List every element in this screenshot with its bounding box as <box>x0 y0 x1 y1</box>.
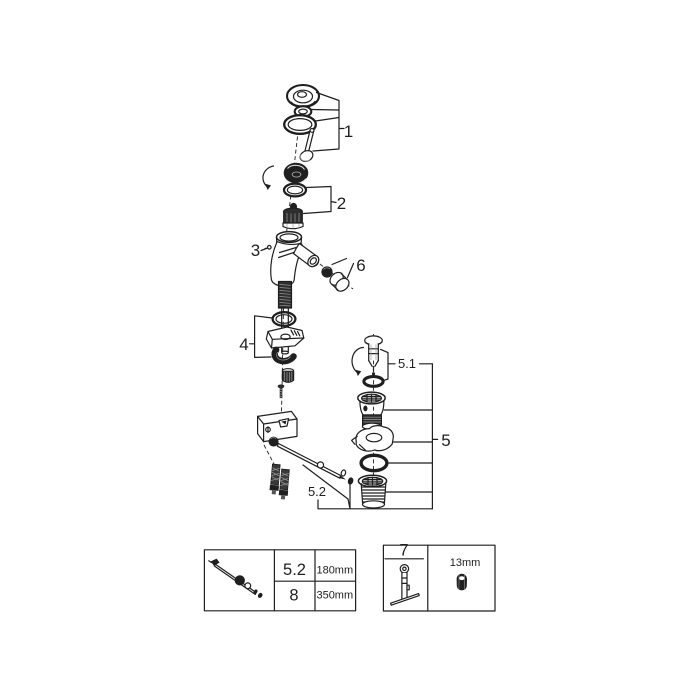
spec-row-0-length: 180mm <box>316 564 353 576</box>
callout-1-label: 1 <box>344 122 353 141</box>
callout-5-2-label: 5.2 <box>308 484 326 499</box>
callout-5-1-label: 5.1 <box>398 356 416 371</box>
callout-5-1-bracket: 5.1 <box>381 349 433 380</box>
part-group-4-mounting <box>266 312 304 398</box>
pop-up-rod-assembly <box>258 411 355 499</box>
diagram-svg: 1 2 3 <box>0 0 700 700</box>
tool-size-label: 13mm <box>450 557 481 569</box>
spec-row-0-ref: 5.2 <box>283 561 306 579</box>
cartridge-body <box>284 212 303 224</box>
tool-box: 7 13mm <box>383 542 495 612</box>
callout-5-label: 5 <box>441 431 450 450</box>
callout-6-label: 6 <box>356 256 365 275</box>
part-group-3-body: 3 <box>251 232 321 286</box>
spec-row-1-ref: 8 <box>289 587 298 605</box>
tool-ref-label: 7 <box>399 542 408 560</box>
callout-3-label: 3 <box>251 241 260 260</box>
nut-icon <box>457 574 467 591</box>
part-group-1-handle-cap <box>284 85 319 163</box>
rotation-arrow-icon <box>263 166 274 187</box>
o-ring <box>361 455 387 470</box>
flex-hoses <box>269 464 291 500</box>
spec-row-1-length: 350mm <box>316 589 353 601</box>
part-group-6-aerator: 6 <box>321 256 365 294</box>
callout-4-label: 4 <box>239 335 248 354</box>
callout-2-bracket: 2 <box>304 187 347 214</box>
exploded-parts-diagram: 1 2 3 <box>0 0 700 700</box>
callout-5-bracket: 5 <box>432 364 450 509</box>
spec-table: 5.2 180mm 8 350mm <box>204 550 355 611</box>
callout-2-label: 2 <box>337 194 346 213</box>
part-group-2-cartridge <box>263 163 308 229</box>
part-group-5-drain: 5.1 <box>352 336 433 508</box>
rotation-arrow-icon <box>352 348 363 373</box>
